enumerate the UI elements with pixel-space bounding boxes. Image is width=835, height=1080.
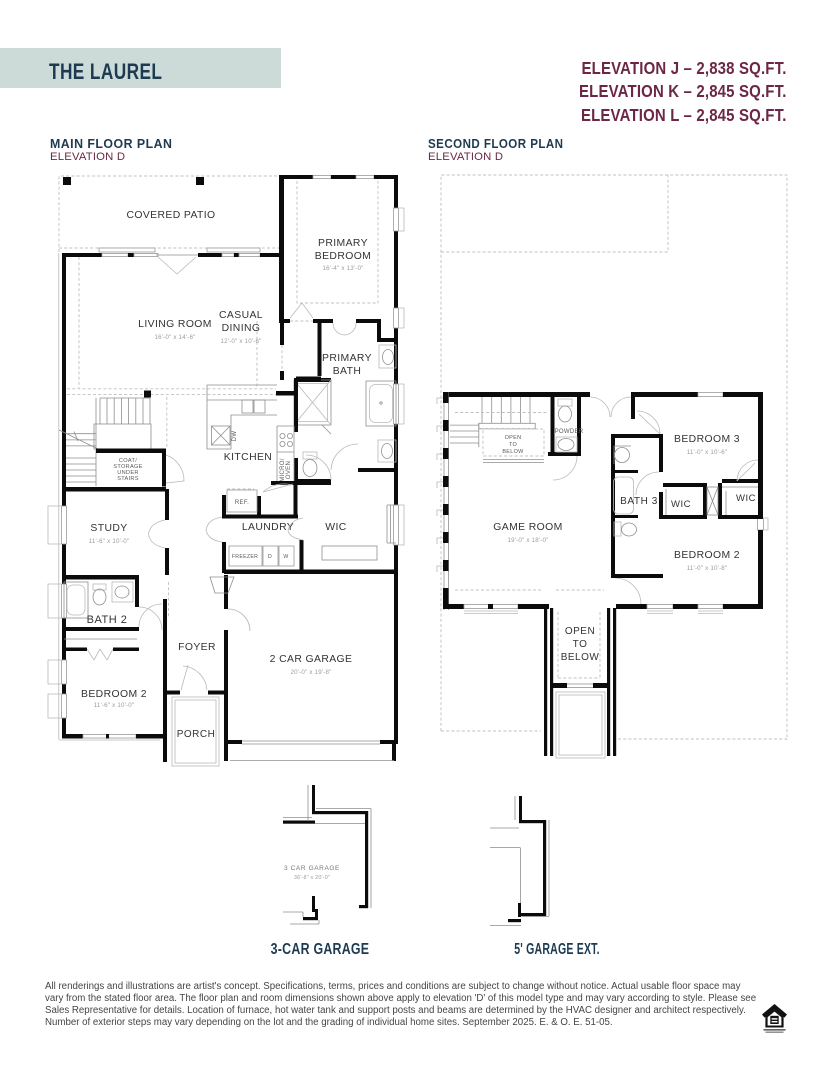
svg-text:BEDROOM: BEDROOM (315, 251, 372, 262)
svg-text:11'-0" x 10'-8": 11'-0" x 10'-8" (687, 565, 728, 572)
svg-text:DW: DW (232, 431, 238, 442)
svg-text:BATH 2: BATH 2 (87, 614, 128, 626)
svg-text:3 CAR GARAGE: 3 CAR GARAGE (284, 865, 340, 872)
svg-text:PRIMARY: PRIMARY (322, 353, 372, 364)
svg-text:BEDROOM 2: BEDROOM 2 (81, 689, 147, 700)
svg-text:WIC: WIC (325, 522, 346, 533)
svg-text:BATH 3: BATH 3 (620, 496, 658, 507)
svg-text:2 CAR GARAGE: 2 CAR GARAGE (270, 654, 353, 665)
svg-text:STUDY: STUDY (90, 523, 127, 534)
svg-text:FOYER: FOYER (178, 642, 216, 653)
svg-text:OPEN: OPEN (505, 435, 522, 441)
svg-text:BEDROOM 3: BEDROOM 3 (674, 434, 740, 445)
svg-text:20'-0" x 19'-8": 20'-0" x 19'-8" (290, 669, 331, 676)
svg-text:TO: TO (573, 639, 588, 650)
svg-text:OPEN: OPEN (565, 626, 595, 637)
svg-text:16'-0" x 14'-6": 16'-0" x 14'-6" (154, 334, 195, 341)
svg-text:REF.: REF. (235, 500, 249, 506)
svg-text:PORCH: PORCH (177, 729, 216, 740)
svg-text:FREEZER: FREEZER (232, 554, 258, 560)
svg-text:TO: TO (509, 442, 518, 448)
svg-text:OVEN: OVEN (286, 461, 292, 479)
svg-text:D: D (268, 554, 272, 560)
svg-text:BATH: BATH (333, 366, 362, 377)
svg-text:CASUAL: CASUAL (219, 310, 263, 321)
svg-text:POWDER: POWDER (555, 429, 584, 435)
svg-text:COVERED PATIO: COVERED PATIO (126, 210, 215, 221)
svg-text:STAIRS: STAIRS (117, 476, 139, 482)
svg-text:BEDROOM 2: BEDROOM 2 (674, 550, 740, 561)
svg-text:LAUNDRY: LAUNDRY (242, 522, 294, 533)
svg-text:12'-0" x 10'-6": 12'-0" x 10'-6" (220, 338, 261, 345)
svg-text:DINING: DINING (222, 323, 261, 334)
svg-text:KITCHEN: KITCHEN (224, 452, 272, 463)
svg-text:BELOW: BELOW (502, 449, 524, 455)
svg-text:GAME ROOM: GAME ROOM (493, 522, 562, 533)
svg-text:19'-0" x 18'-0": 19'-0" x 18'-0" (507, 537, 548, 544)
svg-text:PRIMARY: PRIMARY (318, 238, 368, 249)
svg-text:WIC: WIC (736, 493, 756, 504)
svg-text:BELOW: BELOW (561, 652, 600, 663)
svg-text:W: W (283, 554, 288, 560)
svg-text:16'-4" x 13'-0": 16'-4" x 13'-0" (322, 265, 363, 272)
svg-text:36'-8" x 20'-0": 36'-8" x 20'-0" (294, 875, 330, 881)
svg-text:11'-0" x 10'-6": 11'-0" x 10'-6" (687, 449, 728, 456)
svg-text:11'-6" x 10'-0": 11'-6" x 10'-0" (89, 538, 130, 545)
svg-text:LIVING ROOM: LIVING ROOM (138, 319, 212, 330)
svg-text:WIC: WIC (671, 499, 691, 510)
svg-text:11'-6" x 10'-0": 11'-6" x 10'-0" (94, 702, 135, 709)
